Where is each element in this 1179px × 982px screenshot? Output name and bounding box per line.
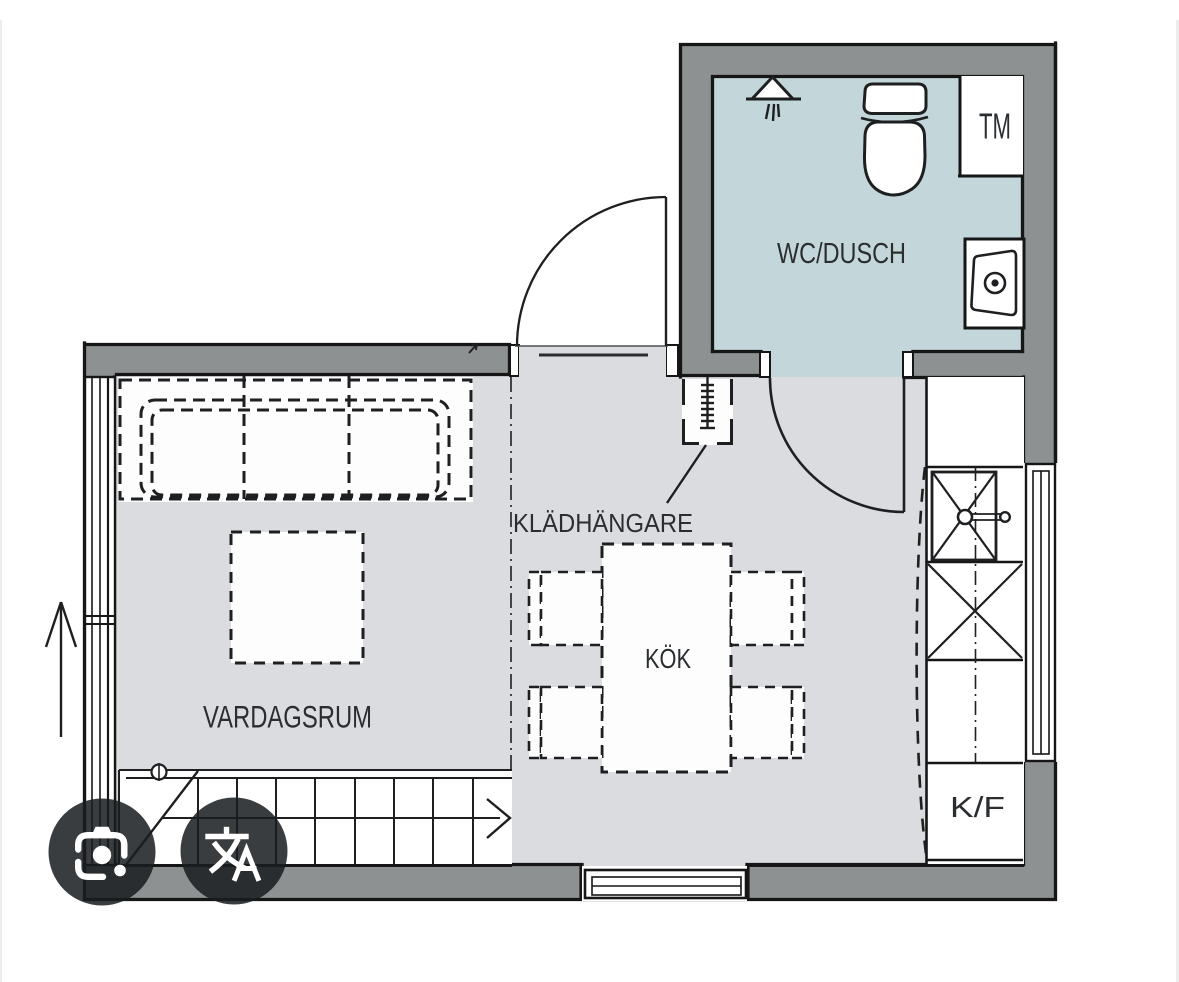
svg-text:KÖK: KÖK bbox=[645, 643, 691, 674]
svg-text:WC/DUSCH: WC/DUSCH bbox=[777, 238, 906, 270]
svg-text:TM: TM bbox=[979, 106, 1011, 147]
svg-text:KLÄDHÄNGARE: KLÄDHÄNGARE bbox=[513, 508, 693, 538]
svg-text:VARDAGSRUM: VARDAGSRUM bbox=[203, 699, 372, 735]
svg-text:K/F: K/F bbox=[950, 792, 1005, 824]
